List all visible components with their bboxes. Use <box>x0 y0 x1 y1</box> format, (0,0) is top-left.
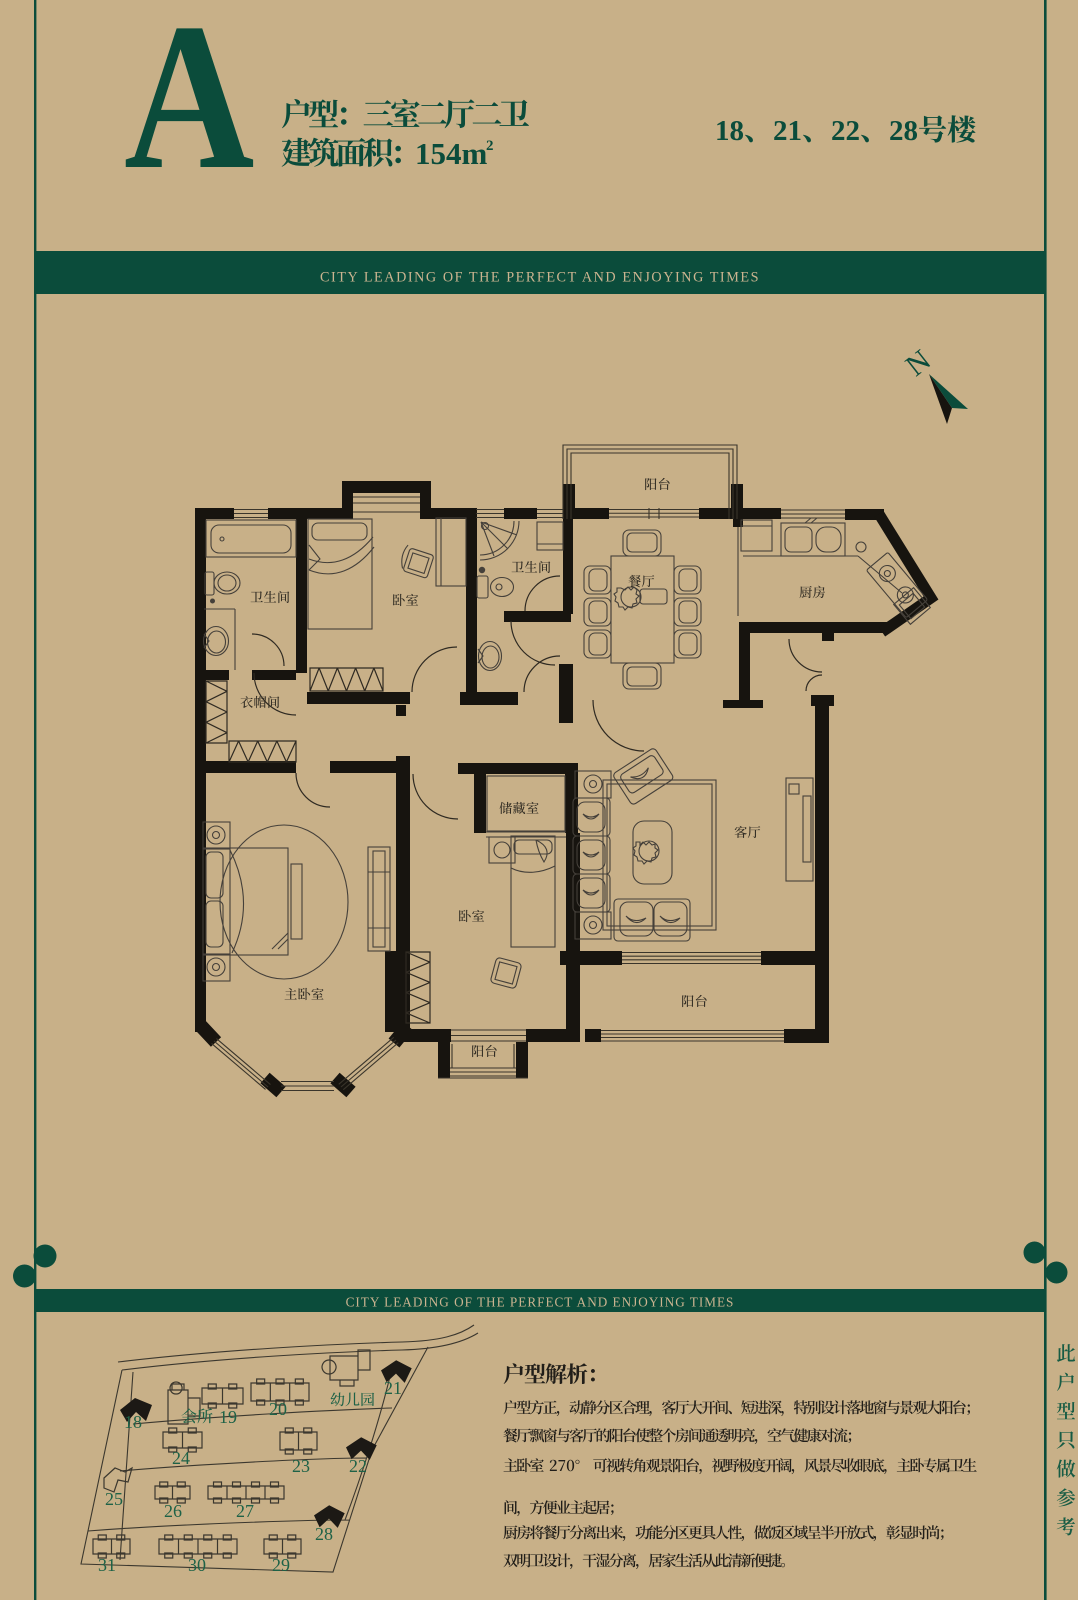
svg-text:21: 21 <box>773 115 802 147</box>
svg-text:28: 28 <box>315 1524 333 1544</box>
svg-text:24: 24 <box>172 1448 190 1468</box>
svg-text:18: 18 <box>715 115 744 147</box>
svg-text:19: 19 <box>219 1407 237 1427</box>
svg-text:28: 28 <box>889 115 918 147</box>
svg-text:CITY LEADING OF THE PERFECT AN: CITY LEADING OF THE PERFECT AND ENJOYING… <box>320 270 760 286</box>
svg-text:22: 22 <box>831 115 860 147</box>
svg-text:18: 18 <box>124 1412 142 1432</box>
svg-text:21: 21 <box>384 1378 402 1398</box>
svg-text:23: 23 <box>292 1456 310 1476</box>
svg-text:31: 31 <box>98 1555 116 1575</box>
svg-text:A: A <box>124 0 254 213</box>
svg-text:154m: 154m <box>415 136 488 171</box>
svg-text:27: 27 <box>236 1501 254 1521</box>
svg-text:22: 22 <box>349 1456 367 1476</box>
svg-text:25: 25 <box>105 1489 123 1509</box>
svg-text:30: 30 <box>188 1555 206 1575</box>
svg-text:26: 26 <box>164 1501 182 1521</box>
svg-text:CITY LEADING OF THE PERFECT AN: CITY LEADING OF THE PERFECT AND ENJOYING… <box>346 1295 735 1310</box>
svg-text:29: 29 <box>272 1555 290 1575</box>
svg-text:20: 20 <box>269 1399 287 1419</box>
svg-text:2: 2 <box>486 138 494 154</box>
